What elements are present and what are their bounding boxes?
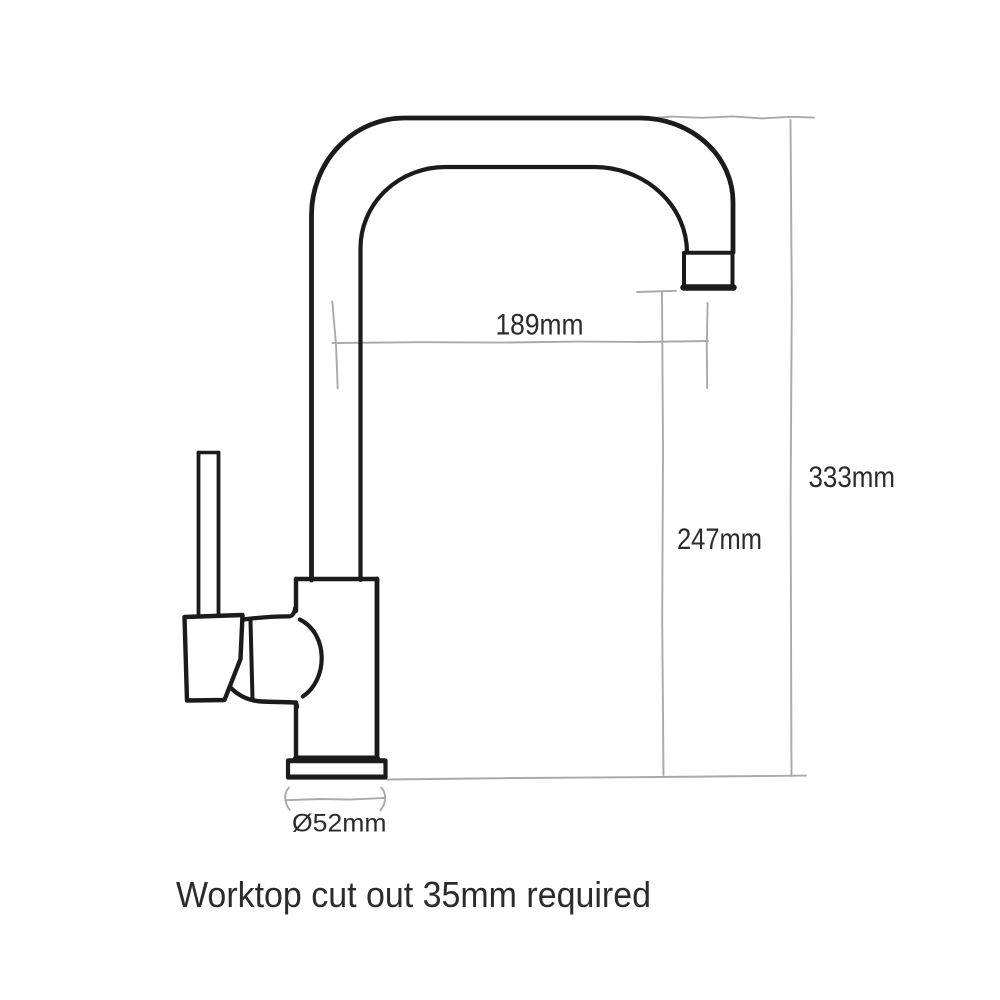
svg-text:333mm: 333mm	[809, 461, 896, 494]
svg-text:247mm: 247mm	[677, 523, 762, 556]
svg-text:189mm: 189mm	[496, 309, 584, 342]
svg-text:Worktop cut out 35mm required: Worktop cut out 35mm required	[176, 874, 651, 915]
svg-text:Ø52mm: Ø52mm	[292, 810, 387, 838]
